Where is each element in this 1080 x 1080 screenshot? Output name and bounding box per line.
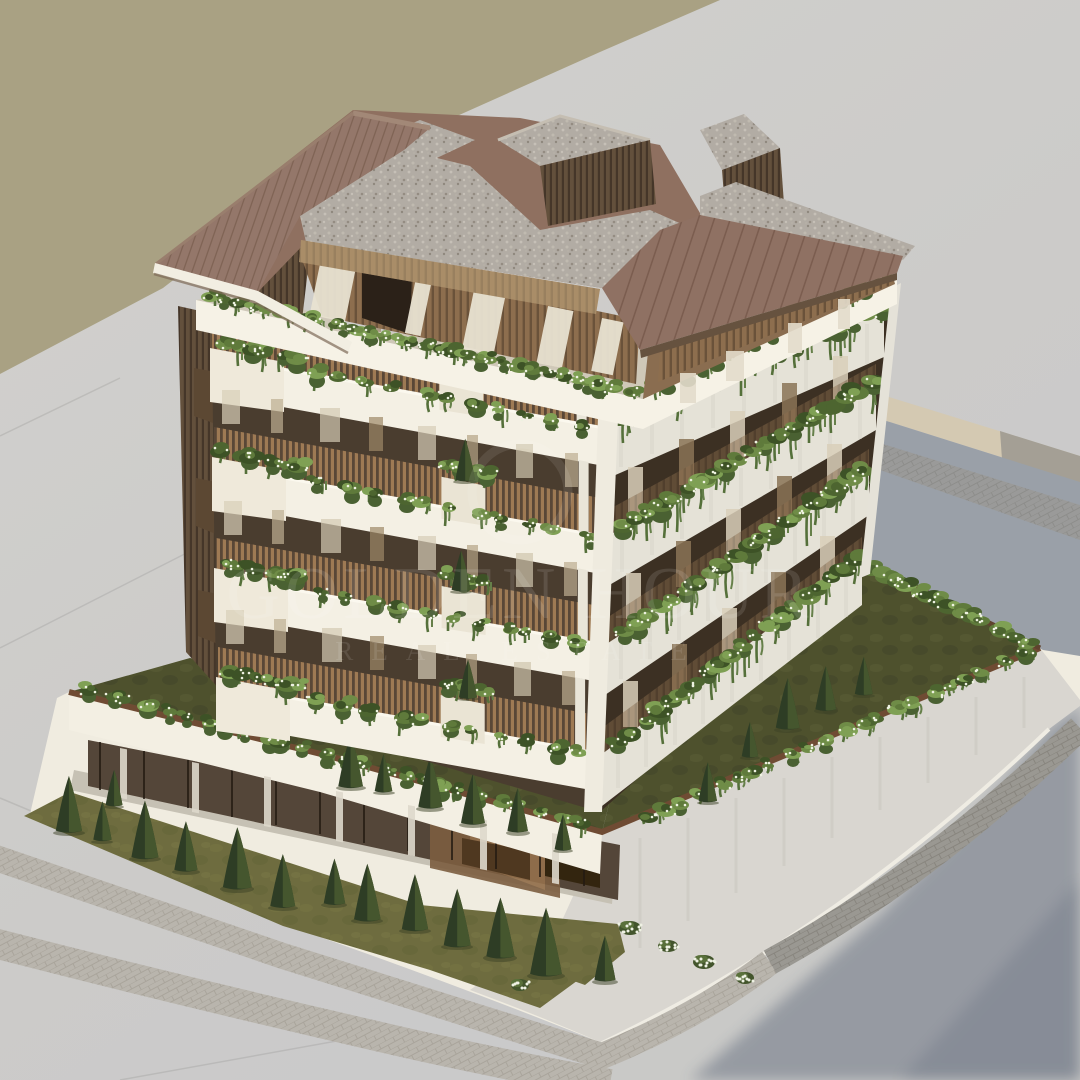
svg-text:REAL ESTATE: REAL ESTATE bbox=[335, 636, 705, 666]
svg-text:GOLDEN HOUR: GOLDEN HOUR bbox=[226, 553, 813, 635]
